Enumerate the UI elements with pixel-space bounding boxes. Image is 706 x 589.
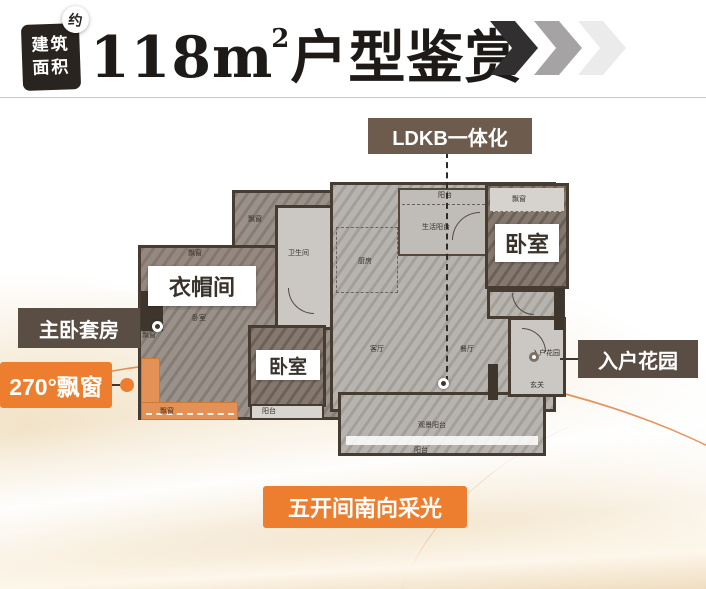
- bay-window-highlight-horizontal: [141, 402, 238, 420]
- wall-chunk-right: [554, 288, 564, 330]
- axis-node-dot: [438, 378, 449, 389]
- tiny-balcony-top: 阳台: [438, 192, 452, 199]
- tiny-bathroom: 卫生间: [288, 250, 309, 257]
- callout-entry-garden-line: [560, 358, 578, 360]
- tiny-dining: 餐厅: [460, 346, 474, 353]
- promo-poster: 建筑 面积 约 118m2户型鉴赏: [0, 0, 706, 589]
- tiny-view-balcony: 观景阳台: [418, 422, 446, 429]
- label-wardrobe: 衣帽间: [148, 266, 256, 306]
- callout-bay-window-line: [112, 384, 120, 386]
- tiny-bay-master-top: 飘窗: [188, 250, 202, 257]
- view-balcony-walkway: [346, 436, 538, 445]
- label-bedroom-mid: 卧室: [256, 350, 320, 380]
- tiny-life-balcony: 生活阳台: [422, 224, 450, 231]
- callout-bay-window-dot: [120, 378, 134, 392]
- tiny-mid-balcony: 阳台: [262, 408, 276, 415]
- axis-dashed-line: [446, 152, 448, 382]
- label-bedroom-right: 卧室: [495, 224, 559, 262]
- tiny-master-bed: 卧室: [192, 315, 206, 322]
- callout-ldkb: LDKB一体化: [368, 118, 532, 154]
- tiny-bay-upper: 飘窗: [248, 216, 262, 223]
- tiny-foyer: 玄关: [530, 382, 544, 389]
- callout-bay-window: 270°飘窗: [0, 362, 112, 408]
- tiny-bay-master-left: 飘窗: [142, 332, 156, 339]
- bedroom-right-bay-strip: [490, 188, 564, 212]
- callout-master-suite: 主卧套房: [18, 308, 140, 348]
- callout-entry-garden: 入户花园: [578, 340, 698, 378]
- tiny-living: 客厅: [370, 346, 384, 353]
- callout-master-suite-dot: [152, 321, 163, 332]
- tiny-balcony-bottom: 阳台: [414, 447, 428, 454]
- tiny-kitchen: 厨房: [358, 258, 372, 265]
- callout-entry-garden-dot: [529, 352, 539, 362]
- wall-chunk-entry: [488, 364, 498, 400]
- tiny-bay-orange: 飘窗: [160, 408, 174, 415]
- callout-south-light: 五开间南向采光: [263, 486, 467, 528]
- tiny-bay-right: 飘窗: [512, 196, 526, 203]
